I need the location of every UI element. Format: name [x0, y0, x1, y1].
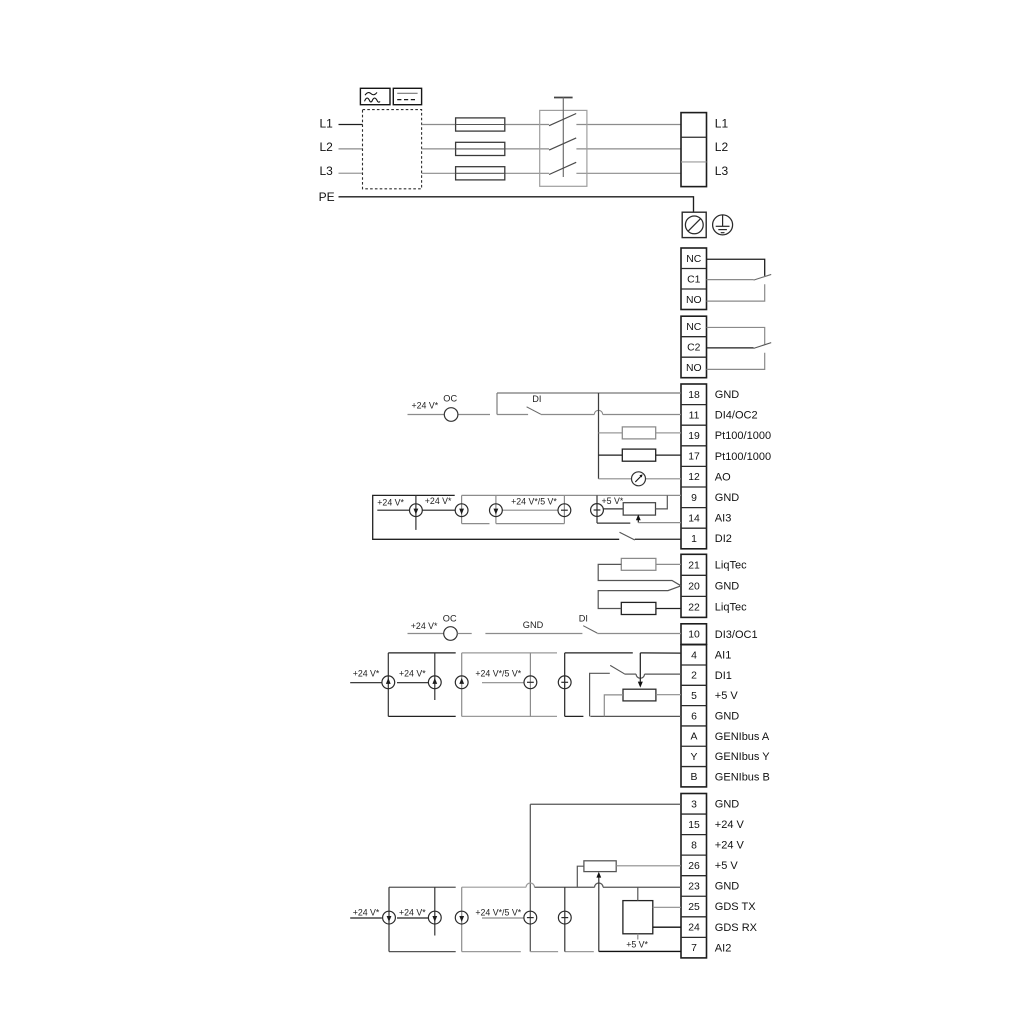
svg-text:+24 V*/5 V*: +24 V*/5 V* [475, 907, 521, 917]
svg-text:GND: GND [715, 389, 740, 401]
svg-text:AO: AO [715, 471, 731, 483]
svg-text:L3: L3 [715, 164, 729, 178]
svg-text:22: 22 [688, 602, 700, 613]
svg-text:NO: NO [686, 295, 702, 306]
svg-text:+24 V*/5 V*: +24 V*/5 V* [475, 668, 521, 678]
svg-text:GENIbus B: GENIbus B [715, 771, 770, 783]
svg-text:Pt100/1000: Pt100/1000 [715, 430, 771, 442]
svg-text:25: 25 [688, 902, 700, 913]
svg-text:GND: GND [715, 798, 740, 810]
svg-text:1: 1 [691, 534, 697, 545]
svg-text:Pt100/1000: Pt100/1000 [715, 451, 771, 463]
svg-text:21: 21 [688, 560, 700, 571]
svg-text:A: A [691, 732, 698, 743]
svg-text:26: 26 [688, 861, 700, 872]
svg-text:DI3/OC1: DI3/OC1 [715, 629, 758, 641]
svg-text:NC: NC [686, 322, 702, 333]
svg-text:4: 4 [691, 650, 697, 661]
svg-text:GND: GND [715, 710, 740, 722]
svg-text:L2: L2 [320, 140, 334, 154]
svg-text:+24 V*/5 V*: +24 V*/5 V* [511, 496, 557, 506]
svg-text:GND: GND [523, 620, 544, 630]
svg-text:OC: OC [443, 613, 457, 623]
svg-text:10: 10 [688, 630, 700, 641]
svg-text:B: B [691, 772, 698, 783]
svg-text:20: 20 [688, 581, 700, 592]
svg-text:DI: DI [532, 394, 541, 404]
svg-text:15: 15 [688, 820, 700, 831]
svg-text:C2: C2 [687, 343, 701, 354]
svg-text:L2: L2 [715, 140, 729, 154]
svg-text:GENIbus A: GENIbus A [715, 731, 770, 743]
svg-text:+24 V*: +24 V* [411, 621, 438, 631]
svg-text:6: 6 [691, 711, 697, 722]
svg-text:+24 V: +24 V [715, 819, 745, 831]
svg-text:NC: NC [686, 254, 702, 265]
svg-text:DI2: DI2 [715, 533, 732, 545]
svg-text:+24 V*: +24 V* [353, 907, 380, 917]
svg-text:+24 V*: +24 V* [425, 496, 452, 506]
svg-text:L3: L3 [320, 164, 334, 178]
svg-text:NO: NO [686, 363, 702, 374]
svg-text:GND: GND [715, 881, 740, 893]
svg-text:+5 V*: +5 V* [626, 940, 648, 950]
svg-text:2: 2 [691, 671, 697, 682]
svg-text:GDS TX: GDS TX [715, 901, 756, 913]
svg-text:LiqTec: LiqTec [715, 602, 747, 614]
svg-text:19: 19 [688, 431, 700, 442]
svg-text:24: 24 [688, 923, 700, 934]
svg-text:DI: DI [579, 614, 588, 624]
svg-text:+5 V: +5 V [715, 690, 739, 702]
svg-text:C1: C1 [687, 274, 701, 285]
svg-text:GENIbus Y: GENIbus Y [715, 751, 770, 763]
svg-text:L1: L1 [715, 117, 729, 131]
svg-text:AI3: AI3 [715, 513, 732, 525]
svg-text:L1: L1 [320, 117, 334, 131]
svg-text:9: 9 [691, 493, 697, 504]
svg-text:Y: Y [691, 752, 698, 763]
svg-text:AI1: AI1 [715, 650, 732, 662]
svg-text:DI4/OC2: DI4/OC2 [715, 410, 758, 422]
svg-text:+24 V: +24 V [715, 840, 745, 852]
svg-text:3: 3 [691, 799, 697, 810]
svg-text:23: 23 [688, 881, 700, 892]
svg-text:+24 V*: +24 V* [377, 498, 404, 508]
svg-text:GND: GND [715, 492, 740, 504]
svg-text:14: 14 [688, 513, 700, 524]
svg-text:+24 V*: +24 V* [412, 401, 439, 411]
svg-text:+5 V*: +5 V* [602, 496, 624, 506]
svg-text:7: 7 [691, 943, 697, 954]
svg-text:AI2: AI2 [715, 942, 732, 954]
svg-text:5: 5 [691, 691, 697, 702]
svg-text:+5 V: +5 V [715, 860, 739, 872]
svg-text:8: 8 [691, 840, 697, 851]
svg-text:GDS RX: GDS RX [715, 922, 758, 934]
svg-text:+24 V*: +24 V* [399, 907, 426, 917]
svg-text:+24 V*: +24 V* [399, 668, 426, 678]
svg-text:PE: PE [319, 190, 335, 204]
svg-text:GND: GND [715, 581, 740, 593]
svg-text:17: 17 [688, 452, 700, 463]
svg-text:+24 V*: +24 V* [353, 668, 380, 678]
svg-text:18: 18 [688, 390, 700, 401]
svg-text:LiqTec: LiqTec [715, 560, 747, 572]
svg-text:12: 12 [688, 472, 700, 483]
svg-text:OC: OC [443, 393, 457, 403]
svg-text:11: 11 [689, 410, 700, 421]
svg-text:DI1: DI1 [715, 670, 732, 682]
